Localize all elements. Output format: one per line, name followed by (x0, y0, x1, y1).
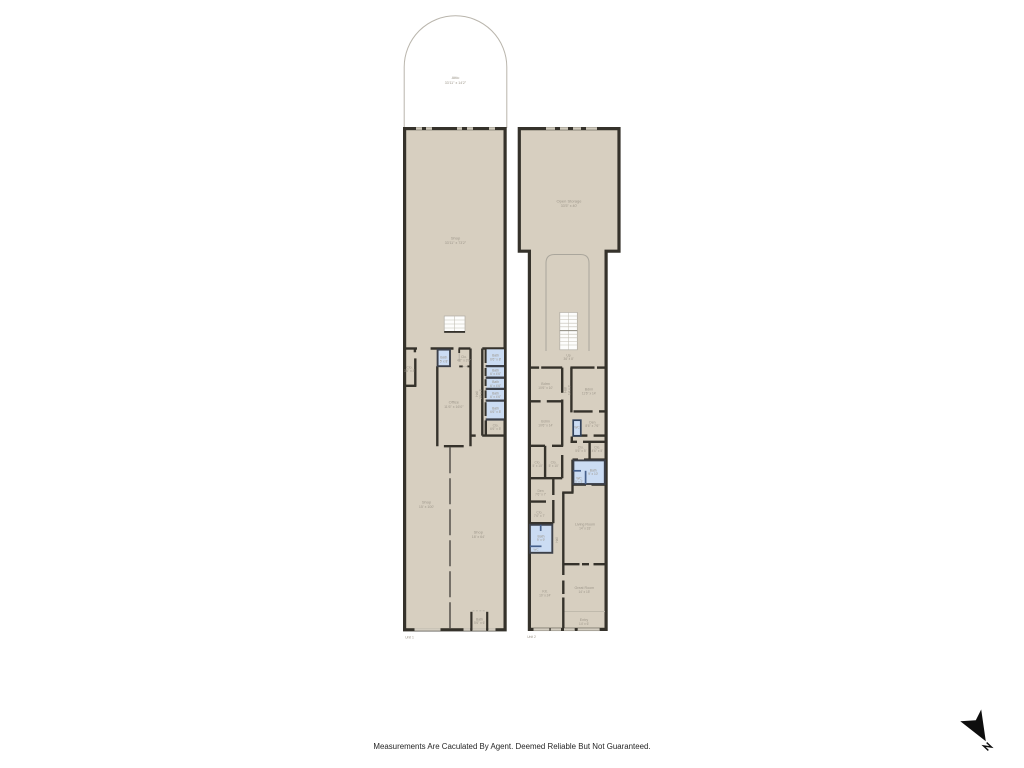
svg-text:Office: Office (449, 400, 460, 405)
svg-text:Shop: Shop (474, 530, 484, 535)
svg-text:23' x 3': 23' x 3' (479, 389, 483, 399)
svg-text:Unit 2: Unit 2 (527, 635, 536, 639)
svg-text:6' x 4'6": 6' x 4'6" (490, 395, 501, 399)
svg-text:Hall: Hall (555, 537, 559, 543)
svg-text:6'6" x 8': 6'6" x 8' (490, 410, 501, 414)
svg-text:14' x 3': 14' x 3' (567, 385, 571, 395)
svg-text:WC: WC (574, 426, 580, 430)
svg-text:14' x 33': 14' x 33' (579, 527, 591, 531)
svg-text:6'6" x 8': 6'6" x 8' (490, 357, 501, 361)
svg-text:33'11" x 14'2": 33'11" x 14'2" (445, 81, 467, 85)
svg-text:10' x 24': 10' x 24' (539, 594, 551, 598)
svg-text:6' x 4'6": 6' x 4'6" (490, 384, 501, 388)
svg-text:5' x 5': 5' x 5' (575, 480, 583, 484)
svg-text:Unit 1: Unit 1 (405, 635, 414, 639)
svg-text:4'0" x 3'6": 4'0" x 3'6" (457, 359, 471, 363)
svg-text:3'6" x 8': 3'6" x 8' (404, 369, 415, 373)
svg-text:5'6" x 6': 5'6" x 6' (474, 621, 485, 625)
svg-text:5'6" x 5': 5'6" x 5' (575, 449, 586, 453)
svg-text:33'5" x 40': 33'5" x 40' (561, 204, 578, 208)
svg-text:14' x 15': 14' x 15' (578, 590, 590, 594)
svg-text:36' x 8': 36' x 8' (564, 357, 574, 361)
svg-text:10'6" x 10': 10'6" x 10' (538, 386, 553, 390)
svg-text:8'6" x 7'6": 8'6" x 7'6" (585, 424, 599, 428)
svg-text:9' x 9': 9' x 9' (537, 538, 546, 542)
svg-text:Shop: Shop (451, 236, 461, 241)
svg-text:6' x 4'6": 6' x 4'6" (490, 372, 501, 376)
svg-text:10'6" x 14': 10'6" x 14' (538, 424, 553, 428)
svg-text:11'6" x 14': 11'6" x 14' (582, 392, 597, 396)
svg-text:15' x 100': 15' x 100' (419, 505, 434, 509)
svg-text:4'6" x 5': 4'6" x 5' (592, 449, 603, 453)
svg-text:Attic: Attic (452, 75, 460, 80)
svg-text:Open Storage: Open Storage (557, 199, 583, 204)
svg-text:5' x 10': 5' x 10' (549, 464, 559, 468)
svg-text:7'6" x 7': 7'6" x 7' (535, 493, 546, 497)
svg-text:Shop: Shop (422, 500, 432, 505)
svg-text:9' x 10': 9' x 10' (588, 472, 598, 476)
svg-text:14' x 6': 14' x 6' (579, 622, 589, 626)
svg-text:18' x 64': 18' x 64' (472, 535, 485, 539)
svg-text:6'6" x 5': 6'6" x 5' (490, 427, 501, 431)
svg-text:5' x 10': 5' x 10' (533, 464, 543, 468)
svg-text:7'6" x 7': 7'6" x 7' (534, 514, 545, 518)
svg-text:11'6" x 16'0": 11'6" x 16'0" (444, 405, 464, 409)
svg-text:5' x 8': 5' x 8' (440, 359, 449, 363)
svg-text:33'11" x 73'2": 33'11" x 73'2" (445, 241, 467, 245)
svg-text:WC: WC (534, 547, 540, 551)
